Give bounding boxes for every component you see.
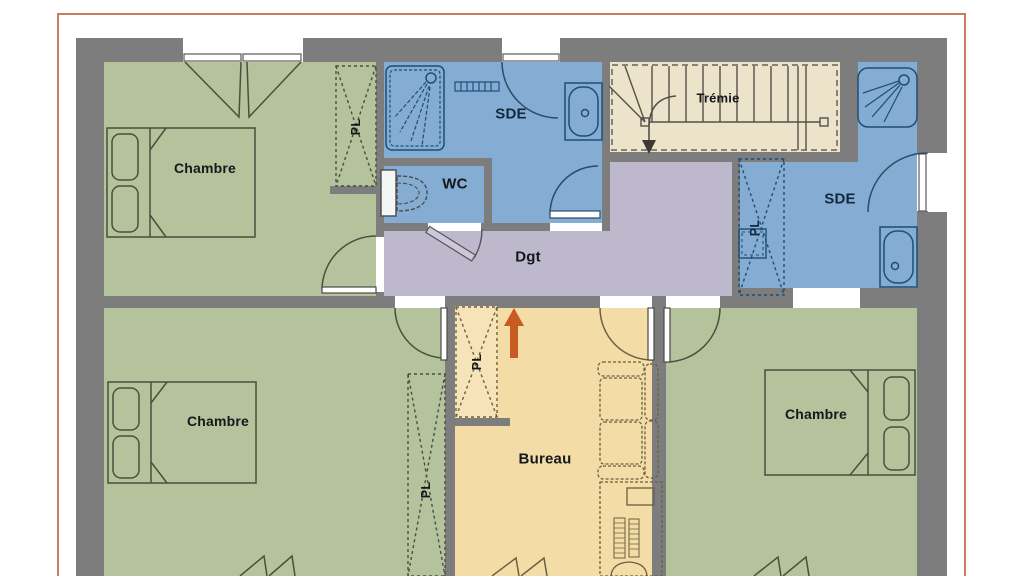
room-label-bureau: Bureau [519, 451, 572, 468]
door-swing-icon [600, 308, 654, 360]
room-label-chambre-tl: Chambre [174, 160, 236, 176]
symbol-overlay [0, 0, 1024, 576]
closet-label-pl: PL [349, 119, 363, 135]
shower-icon [858, 68, 917, 127]
room-label-chambre-br: Chambre [785, 406, 847, 422]
room-label-wc: WC [442, 176, 467, 193]
double-bed-icon [107, 128, 255, 237]
closet-label-pl: PL [470, 354, 484, 370]
door-swing-icon [550, 166, 600, 218]
window-icon [868, 150, 928, 215]
closet-label-pl: PL [748, 220, 762, 236]
room-label-sde-top: SDE [495, 106, 526, 123]
floor-plan: Chambre Chambre Chambre SDE SDE WC Dgt T… [0, 0, 1024, 576]
radiator-icon [455, 82, 499, 91]
sofa-icon [598, 362, 658, 479]
window-icon [492, 558, 547, 576]
room-label-chambre-bl: Chambre [187, 413, 249, 429]
door-swing-icon [664, 308, 720, 362]
closet-cross-icon [408, 374, 445, 576]
double-bed-icon [765, 370, 915, 475]
closet-label-pl: PL [419, 482, 433, 498]
room-label-dgt: Dgt [515, 249, 541, 266]
staircase-icon [609, 65, 837, 154]
door-swing-icon [395, 308, 447, 360]
bathtub-icon [565, 83, 602, 140]
toilet-icon [381, 170, 427, 216]
desk-icon [600, 482, 662, 576]
room-label-sde-right: SDE [824, 191, 855, 208]
bathtub-icon [880, 227, 917, 287]
room-label-tremie: Trémie [696, 91, 739, 106]
window-icon [184, 54, 301, 117]
door-swing-icon [426, 226, 482, 261]
double-bed-icon [108, 382, 256, 483]
up-arrow-icon [504, 308, 524, 358]
door-swing-icon [322, 236, 376, 293]
shower-icon [386, 66, 444, 150]
